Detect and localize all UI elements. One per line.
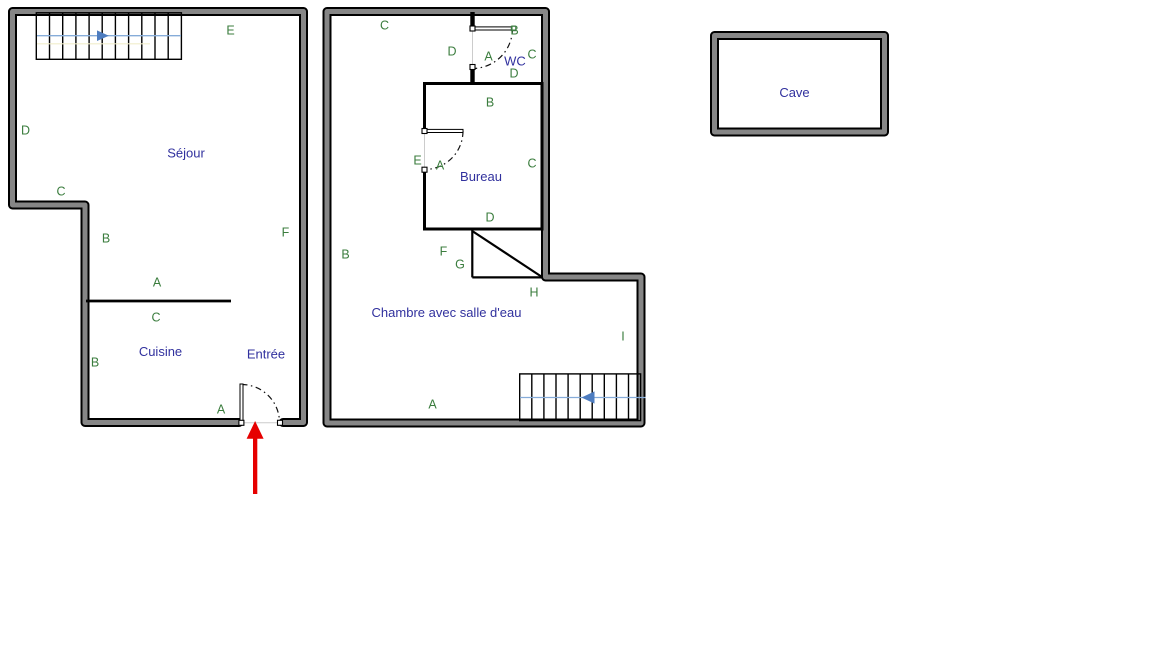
svg-text:B: B	[91, 356, 99, 370]
svg-text:F: F	[440, 245, 448, 259]
svg-text:I: I	[621, 330, 624, 344]
svg-text:A: A	[428, 398, 437, 412]
svg-text:Bureau: Bureau	[460, 169, 502, 184]
svg-text:C: C	[151, 311, 160, 325]
svg-text:B: B	[510, 24, 518, 38]
svg-text:C: C	[527, 48, 536, 62]
svg-text:G: G	[455, 258, 465, 272]
svg-text:B: B	[102, 232, 110, 246]
svg-text:B: B	[341, 248, 349, 262]
svg-text:Séjour: Séjour	[167, 145, 205, 160]
svg-text:A: A	[436, 159, 445, 173]
svg-text:D: D	[485, 211, 494, 225]
svg-text:Cuisine: Cuisine	[139, 344, 182, 359]
svg-text:D: D	[447, 45, 456, 59]
svg-text:A: A	[484, 50, 493, 64]
svg-text:D: D	[509, 67, 518, 81]
svg-text:Entrée: Entrée	[247, 347, 285, 362]
svg-text:H: H	[529, 286, 538, 300]
svg-text:B: B	[486, 96, 494, 110]
svg-text:A: A	[217, 403, 226, 417]
svg-text:Cave: Cave	[779, 85, 809, 100]
svg-text:Chambre avec salle d'eau: Chambre avec salle d'eau	[372, 305, 522, 320]
svg-text:C: C	[527, 157, 536, 171]
svg-text:C: C	[56, 185, 65, 199]
svg-text:F: F	[282, 226, 290, 240]
svg-text:D: D	[21, 124, 30, 138]
svg-text:E: E	[226, 24, 234, 38]
svg-text:A: A	[153, 276, 162, 290]
svg-text:E: E	[413, 154, 421, 168]
svg-text:C: C	[380, 19, 389, 33]
